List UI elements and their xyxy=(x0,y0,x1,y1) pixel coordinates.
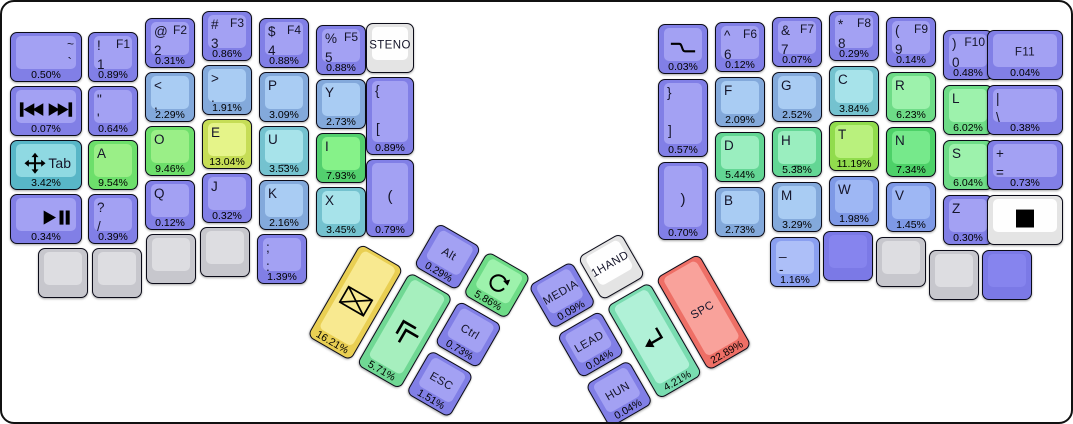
usage-percent: 0.86% xyxy=(203,48,251,60)
key-label: W xyxy=(838,183,851,197)
key-blank[interactable] xyxy=(982,250,1032,300)
usage-percent: 0.34% xyxy=(11,231,81,243)
key-label: F1 xyxy=(116,38,130,50)
key-x[interactable]: X3.45% xyxy=(316,187,366,237)
usage-percent: 5.44% xyxy=(716,169,764,181)
key-6[interactable]: ^F660.12% xyxy=(715,22,765,72)
key-label: ] xyxy=(668,124,672,138)
key-2[interactable]: @F220.31% xyxy=(145,18,195,68)
key-5[interactable]: %F550.88% xyxy=(316,25,366,75)
key-s[interactable]: S6.04% xyxy=(943,140,993,190)
key-label: O xyxy=(154,133,165,147)
keycap-top xyxy=(829,235,867,268)
key-label: K xyxy=(268,187,277,201)
key-w[interactable]: W1.98% xyxy=(829,176,879,226)
key-q[interactable]: Q0.12% xyxy=(145,180,195,230)
key-label: _ xyxy=(779,244,787,258)
keyboard-heatmap: ~`0.50%!F110.89%@F220.31%#F330.86%$F440.… xyxy=(0,0,1073,424)
key-label: 1HAND xyxy=(587,248,634,282)
usage-percent: 3.09% xyxy=(260,109,308,121)
key-black-square[interactable] xyxy=(987,195,1063,245)
key-semicolon[interactable]: ;:1.39% xyxy=(257,234,307,284)
key-label: F10 xyxy=(964,36,985,48)
usage-percent: 0.29% xyxy=(830,48,878,60)
key-e[interactable]: E13.04% xyxy=(202,119,252,169)
key-blank[interactable] xyxy=(38,248,88,298)
usage-percent: 3.84% xyxy=(830,103,878,115)
usage-percent: 2.73% xyxy=(716,224,764,236)
key-label: L xyxy=(952,92,960,106)
key-h[interactable]: H_5.38% xyxy=(772,127,822,177)
usage-percent: 0.48% xyxy=(944,67,992,79)
key-r[interactable]: R6.23% xyxy=(886,72,936,122)
keycap-top xyxy=(935,254,973,287)
key-f11[interactable]: F110.04% xyxy=(987,30,1063,80)
usage-percent: 0.79% xyxy=(367,224,413,236)
usage-percent: 5.38% xyxy=(773,164,821,176)
key-label: " xyxy=(97,93,102,107)
key-8[interactable]: *F880.29% xyxy=(829,11,879,61)
usage-percent: 4.21% xyxy=(654,364,702,398)
usage-percent: 0.73% xyxy=(988,177,1062,189)
usage-percent: 0.70% xyxy=(659,227,707,239)
key-question[interactable]: ?/0.39% xyxy=(88,194,138,244)
key-label: U xyxy=(268,133,278,147)
key-m[interactable]: M3.29% xyxy=(772,182,822,232)
key-0[interactable]: )F1000.48% xyxy=(943,30,993,80)
key-3[interactable]: #F330.86% xyxy=(202,11,252,61)
key-label: C xyxy=(838,73,848,87)
usage-percent: 0.88% xyxy=(317,62,365,74)
enter-icon xyxy=(637,323,671,355)
key-label: S xyxy=(952,147,961,161)
key-label: > xyxy=(211,72,219,86)
key-blank[interactable] xyxy=(929,250,979,300)
key-u[interactable]: U_3.53% xyxy=(259,126,309,176)
key-label: STENO xyxy=(367,41,413,53)
usage-percent: 5.71% xyxy=(358,354,406,388)
key-label: } xyxy=(667,86,672,100)
usage-percent: 0.57% xyxy=(659,144,707,156)
usage-percent: 3.45% xyxy=(317,224,365,236)
key-v[interactable]: V1.45% xyxy=(886,182,936,232)
key-label: + xyxy=(996,147,1004,161)
key-label: Y xyxy=(325,86,334,100)
usage-percent: 0.89% xyxy=(367,142,413,154)
key-label: A xyxy=(97,147,106,161)
keycap-top xyxy=(993,89,1057,122)
key-label: Tab xyxy=(48,156,71,170)
key-play-pause[interactable]: 0.34% xyxy=(10,194,82,244)
key-minus[interactable]: _-1.16% xyxy=(770,237,820,287)
prev-next-track-icon xyxy=(18,101,74,119)
usage-percent: 0.38% xyxy=(988,122,1062,134)
usage-percent: 3.42% xyxy=(11,177,81,189)
key-rbracket[interactable]: }]0.57% xyxy=(658,79,708,157)
key-steno[interactable]: STENO xyxy=(366,23,414,73)
usage-percent: 7.93% xyxy=(317,170,365,182)
usage-percent: 0.88% xyxy=(260,55,308,67)
key-label: T xyxy=(838,128,846,142)
usage-percent: 0.07% xyxy=(773,54,821,66)
key-label: F4 xyxy=(287,24,301,36)
usage-percent: 11.19% xyxy=(830,158,878,170)
key-label: ; xyxy=(266,241,270,255)
key-label: V xyxy=(895,189,904,203)
usage-percent: 3.29% xyxy=(773,219,821,231)
usage-percent: 3.53% xyxy=(260,163,308,175)
keycap-top xyxy=(988,254,1026,287)
usage-percent: 0.03% xyxy=(659,61,707,73)
key-label: H xyxy=(781,134,791,148)
key-label: ? xyxy=(97,201,105,215)
usage-percent: 2.16% xyxy=(260,217,308,229)
usage-percent: 1.39% xyxy=(258,271,306,283)
usage-percent: 2.09% xyxy=(716,114,764,126)
key-f[interactable]: F2.09% xyxy=(715,77,765,127)
key-grave[interactable]: ~`0.50% xyxy=(10,32,82,82)
key-4[interactable]: $F440.88% xyxy=(259,18,309,68)
key-label: F3 xyxy=(230,17,244,29)
key-label: P xyxy=(268,79,277,93)
usage-percent: 2.52% xyxy=(773,109,821,121)
key-label: ^ xyxy=(724,29,730,43)
keycap-top xyxy=(206,231,244,264)
usage-percent: 1.16% xyxy=(771,274,819,286)
key-label: & xyxy=(781,24,790,38)
usage-percent: 6.02% xyxy=(944,122,992,134)
usage-percent: 2.73% xyxy=(317,116,365,128)
key-label: # xyxy=(211,18,219,32)
key-label: Z xyxy=(952,202,960,216)
key-label: ) xyxy=(952,37,957,51)
key-a[interactable]: A9.54% xyxy=(88,140,138,190)
key-c[interactable]: C3.84% xyxy=(829,66,879,116)
usage-percent: 0.12% xyxy=(146,217,194,229)
key-quote[interactable]: "'0.64% xyxy=(88,86,138,136)
key-label: ~ xyxy=(67,38,74,50)
key-label: F xyxy=(724,84,732,98)
key-g[interactable]: G2.52% xyxy=(772,72,822,122)
usage-percent: 7.34% xyxy=(887,164,935,176)
usage-percent: 22.89% xyxy=(703,335,751,369)
usage-percent: 2.29% xyxy=(146,109,194,121)
key-blank[interactable] xyxy=(876,237,926,287)
key-pipe[interactable]: |\0.38% xyxy=(987,85,1063,135)
key-label: X xyxy=(325,194,334,208)
key-plus[interactable]: +=0.73% xyxy=(987,140,1063,190)
key-label: M xyxy=(781,189,792,203)
key-7[interactable]: &F770.07% xyxy=(772,17,822,67)
key-label: I xyxy=(325,140,329,154)
key-lparen[interactable]: (0.79% xyxy=(366,159,414,237)
key-k[interactable]: K2.16% xyxy=(259,180,309,230)
key-label: D xyxy=(724,139,734,153)
play-pause-icon xyxy=(41,209,71,227)
black-square-icon xyxy=(1016,210,1034,228)
usage-percent: 0.32% xyxy=(203,210,251,222)
key-label: F7 xyxy=(800,23,814,35)
key-wave[interactable]: 0.03% xyxy=(658,24,708,74)
key-tab[interactable]: Tab3.42% xyxy=(10,140,82,190)
usage-percent: 0.14% xyxy=(887,54,935,66)
key-label: B xyxy=(724,194,733,208)
key-l[interactable]: L6.02% xyxy=(943,85,993,135)
key-blank[interactable] xyxy=(146,234,196,284)
usage-percent: 0.64% xyxy=(89,123,137,135)
wave-icon xyxy=(669,39,697,57)
key-comma[interactable]: <,2.29% xyxy=(145,72,195,122)
usage-percent: 16.21% xyxy=(308,325,356,359)
key-label: F9 xyxy=(914,23,928,35)
usage-percent: 9.54% xyxy=(89,177,137,189)
key-label: F6 xyxy=(743,28,757,40)
key-label: R xyxy=(895,79,905,93)
key-label: SPC xyxy=(679,294,726,328)
key-9[interactable]: (F990.14% xyxy=(886,17,936,67)
key-j[interactable]: J0.32% xyxy=(202,173,252,223)
key-o[interactable]: O9.46% xyxy=(145,126,195,176)
key-label: ! xyxy=(97,39,101,53)
key-label: ( xyxy=(367,189,413,204)
key-label: ) xyxy=(659,192,707,207)
key-label: F11 xyxy=(988,48,1062,60)
usage-percent: 1.91% xyxy=(203,102,251,114)
usage-percent: 0.12% xyxy=(716,59,764,71)
key-lbracket[interactable]: {[0.89% xyxy=(366,77,414,155)
key-i[interactable]: I7.93% xyxy=(316,133,366,183)
key-period[interactable]: >.1.91% xyxy=(202,65,252,115)
usage-percent: 1.45% xyxy=(887,219,935,231)
keycap-top xyxy=(152,238,190,271)
key-d[interactable]: D5.44% xyxy=(715,132,765,182)
shift-chevrons-icon xyxy=(385,308,426,349)
key-label: J xyxy=(211,180,218,194)
key-t[interactable]: T11.19% xyxy=(829,121,879,171)
key-blank[interactable] xyxy=(200,227,250,277)
key-label: | xyxy=(996,92,1000,106)
usage-percent: 1.98% xyxy=(830,213,878,225)
move-icon xyxy=(24,152,46,174)
key-y[interactable]: Y2.73% xyxy=(316,79,366,129)
usage-percent: 0.39% xyxy=(89,231,137,243)
key-label: $ xyxy=(268,25,276,39)
key-rparen[interactable]: )0.70% xyxy=(658,162,708,240)
usage-percent: 0.89% xyxy=(89,69,137,81)
key-blank[interactable] xyxy=(92,248,142,298)
key-label: G xyxy=(781,79,792,93)
key-p[interactable]: P3.09% xyxy=(259,72,309,122)
key-b[interactable]: B2.73% xyxy=(715,187,765,237)
usage-percent: 13.04% xyxy=(203,156,251,168)
keycap-top xyxy=(98,252,136,285)
usage-percent: 0.50% xyxy=(11,69,81,81)
key-label: F5 xyxy=(344,31,358,43)
envelope-icon xyxy=(338,284,374,317)
key-label: F2 xyxy=(173,24,187,36)
keycap-top xyxy=(44,252,82,285)
key-label: * xyxy=(838,18,843,32)
key-z[interactable]: Z0.30% xyxy=(943,195,993,245)
key-label: E xyxy=(211,126,220,140)
usage-percent: 9.46% xyxy=(146,163,194,175)
key-label: Q xyxy=(154,187,165,201)
key-n[interactable]: N7.34% xyxy=(886,127,936,177)
usage-percent: 0.30% xyxy=(944,232,992,244)
usage-percent: 0.04% xyxy=(988,67,1062,79)
key-label: N xyxy=(895,134,905,148)
usage-percent: 0.31% xyxy=(146,55,194,67)
key-media-tracks[interactable]: 0.07% xyxy=(10,86,82,136)
key-label: { xyxy=(375,84,380,98)
usage-percent: 0.07% xyxy=(11,123,81,135)
key-blank[interactable] xyxy=(823,231,873,281)
key-label: % xyxy=(325,32,337,46)
key-label: @ xyxy=(154,25,168,39)
usage-percent: 6.04% xyxy=(944,177,992,189)
key-label: ` xyxy=(68,56,73,70)
key-label: ( xyxy=(895,24,900,38)
keycap-top xyxy=(882,241,920,274)
key-label: [ xyxy=(376,122,380,136)
usage-percent: 6.23% xyxy=(887,109,935,121)
key-1[interactable]: !F110.89% xyxy=(88,32,138,82)
key-label: < xyxy=(154,79,162,93)
key-label: F8 xyxy=(857,17,871,29)
